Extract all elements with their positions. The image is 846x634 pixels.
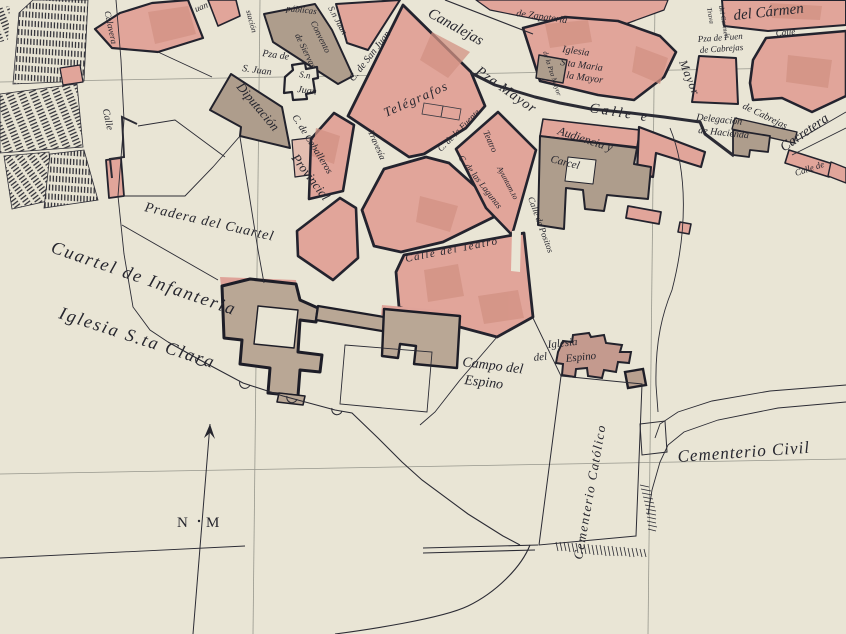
- svg-text:S.n: S.n: [299, 69, 312, 81]
- svg-text:del: del: [533, 351, 548, 364]
- svg-text:Calle: Calle: [775, 26, 795, 38]
- svg-text:M: M: [206, 515, 219, 531]
- svg-text:N: N: [177, 515, 188, 531]
